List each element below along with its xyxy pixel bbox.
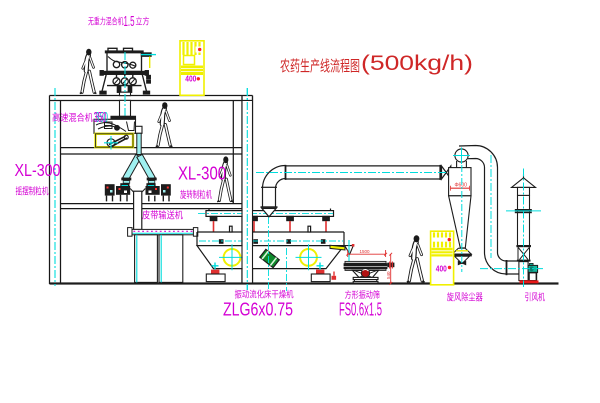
svg-text:方形振动筛: 方形振动筛 (345, 289, 381, 300)
svg-text:立方: 立方 (136, 16, 150, 27)
svg-text:高速混合机: 高速混合机 (52, 112, 93, 124)
svg-text:旋风除尘器: 旋风除尘器 (447, 292, 483, 304)
svg-text:(500kg/h): (500kg/h) (361, 51, 473, 75)
svg-text:400: 400 (185, 74, 196, 84)
svg-text:无重力混合机: 无重力混合机 (88, 16, 124, 27)
svg-text:引风机: 引风机 (525, 291, 546, 303)
svg-text:FS0.6x1.5: FS0.6x1.5 (339, 299, 382, 319)
svg-text:摇摆制粒机: 摇摆制粒机 (16, 186, 49, 198)
svg-text:Φ600: Φ600 (455, 182, 468, 188)
svg-text:1.5: 1.5 (124, 13, 135, 30)
svg-text:振动流化床干燥机: 振动流化床干燥机 (235, 289, 294, 300)
svg-text:350: 350 (94, 109, 107, 126)
svg-text:XL-300: XL-300 (15, 160, 61, 180)
svg-text:皮带输送机: 皮带输送机 (142, 210, 183, 222)
svg-text:XL-300: XL-300 (178, 164, 226, 184)
svg-text:农药生产线流程图: 农药生产线流程图 (280, 58, 360, 75)
svg-text:540: 540 (386, 271, 391, 279)
svg-text:400: 400 (436, 264, 447, 274)
svg-text:1500: 1500 (360, 249, 370, 254)
svg-text:旋转制粒机: 旋转制粒机 (180, 189, 212, 201)
svg-text:ZLG6x0.75: ZLG6x0.75 (223, 299, 293, 319)
